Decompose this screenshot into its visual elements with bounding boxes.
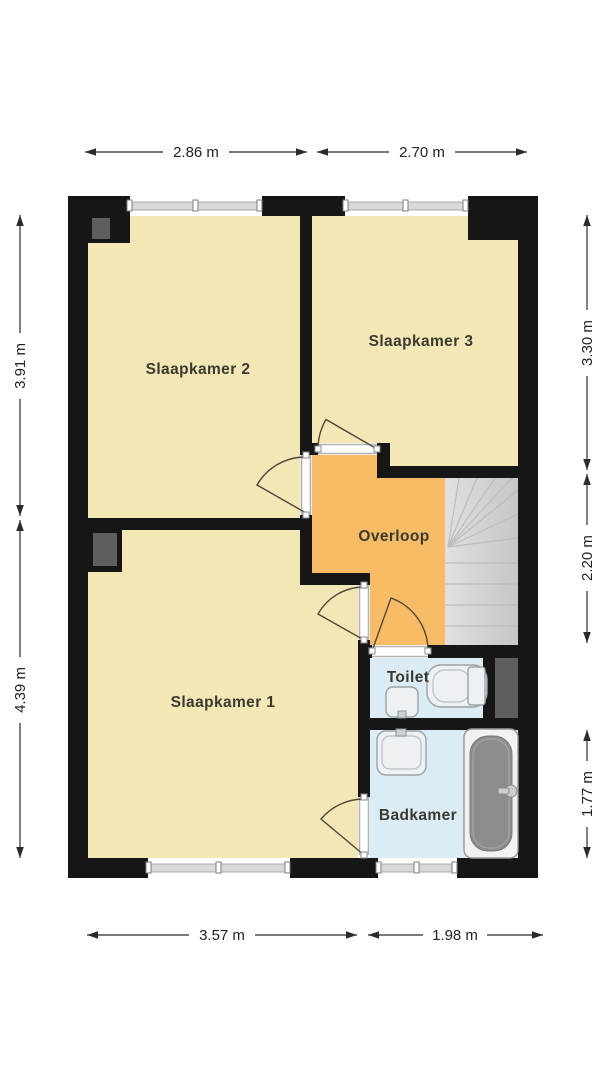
badkamer-sink	[377, 729, 426, 775]
room-overloop-label: Overloop	[358, 528, 429, 545]
duct-toilet	[495, 658, 518, 718]
room-badkamer-label: Badkamer	[379, 807, 457, 824]
bathtub	[464, 729, 518, 858]
dimension-left-2-label: 4.39 m	[12, 667, 29, 713]
dimension-top-2-label: 2.70 m	[399, 144, 445, 161]
toilet-sink	[386, 687, 418, 718]
chimney-duct	[93, 533, 117, 566]
room-slaapkamer2-label: Slaapkamer 2	[146, 361, 251, 378]
dimension-right-2-label: 2.20 m	[579, 535, 596, 581]
room-slaapkamer3-label: Slaapkamer 3	[369, 333, 474, 350]
window-top-slaapkamer2	[127, 196, 262, 216]
dimension-right-3-label: 1.77 m	[579, 771, 596, 817]
window-bottom-slaapkamer1	[146, 858, 290, 878]
window-bottom-badkamer	[376, 858, 457, 878]
dimension-right-1-label: 3.30 m	[579, 320, 596, 366]
staircase	[445, 478, 518, 645]
dimension-top-1-label: 2.86 m	[173, 144, 219, 161]
room-toilet-label: Toilet	[387, 669, 430, 686]
duct-top-left	[92, 218, 110, 239]
dimension-bottom-1-label: 3.57 m	[199, 927, 245, 944]
toilet-fixture	[427, 665, 487, 707]
dimension-bottom-2-label: 1.98 m	[432, 927, 478, 944]
floorplan: Slaapkamer 2 Slaapkamer 3 Slaapkamer 1 O…	[0, 0, 608, 1080]
dimension-left-1-label: 3.91 m	[12, 343, 29, 389]
room-slaapkamer1-label: Slaapkamer 1	[171, 694, 276, 711]
window-top-slaapkamer3	[343, 196, 468, 216]
